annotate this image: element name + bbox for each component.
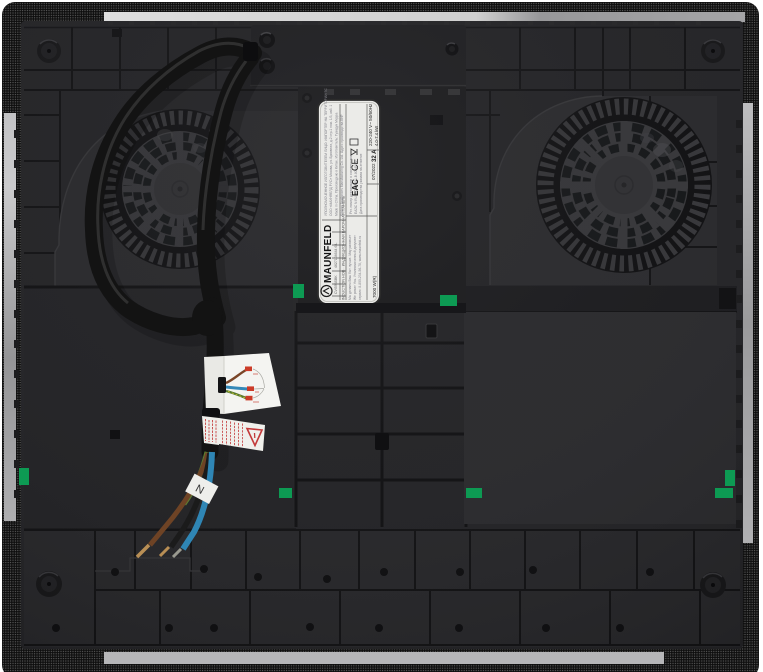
svg-text:Kitchen Appliances Manufacturi: Kitchen Appliances Manufacturing Co. Ltd…	[340, 113, 344, 216]
svg-text:УПОЛНОМОЧЕННОЕ ИЗГОТОВИТЕЛЕМ Л: УПОЛНОМОЧЕННОЕ ИЗГОТОВИТЕЛЕМ ЛИЦО: ИМПОР…	[324, 88, 328, 216]
svg-text:сервис: 8-800-234-56-78, www.m: сервис: 8-800-234-56-78, www.maunfeld.ru	[358, 236, 362, 300]
svg-text:CE: CE	[350, 158, 360, 171]
svg-text:07/2022: 07/2022	[371, 163, 376, 180]
svg-text:Made in China. Произведено в К: Made in China. Произведено в Китае. Изго…	[335, 112, 339, 216]
svg-text:ООО «МАУНФЕЛД РУС» Москва, ул.: ООО «МАУНФЕЛД РУС» Москва, ул. Бриквелл,…	[329, 105, 333, 216]
svg-text:CVI594SBK: CVI594SBK	[334, 275, 338, 294]
svg-text:32 A: 32 A	[372, 149, 378, 162]
svg-text:7000 W(R): 7000 W(R)	[372, 275, 377, 298]
svg-text:220-240 V~ 50/60Hz: 220-240 V~ 50/60Hz	[368, 103, 373, 146]
svg-text:4627104644 6 L: 4627104644 6 L	[334, 243, 338, 268]
svg-text:We power You. Уполномоченный д: We power You. Уполномоченный документ	[353, 235, 357, 300]
svg-text:MAUNFELD: MAUNFELD	[323, 224, 334, 283]
svg-text:4.0-7.4 kW: 4.0-7.4 kW	[374, 126, 379, 146]
svg-text:EAC: EAC	[351, 179, 360, 196]
svg-text:Мы делаем Ваш быт лучше. Мау р: Мы делаем Ваш быт лучше. Мау разовьет	[348, 234, 352, 300]
